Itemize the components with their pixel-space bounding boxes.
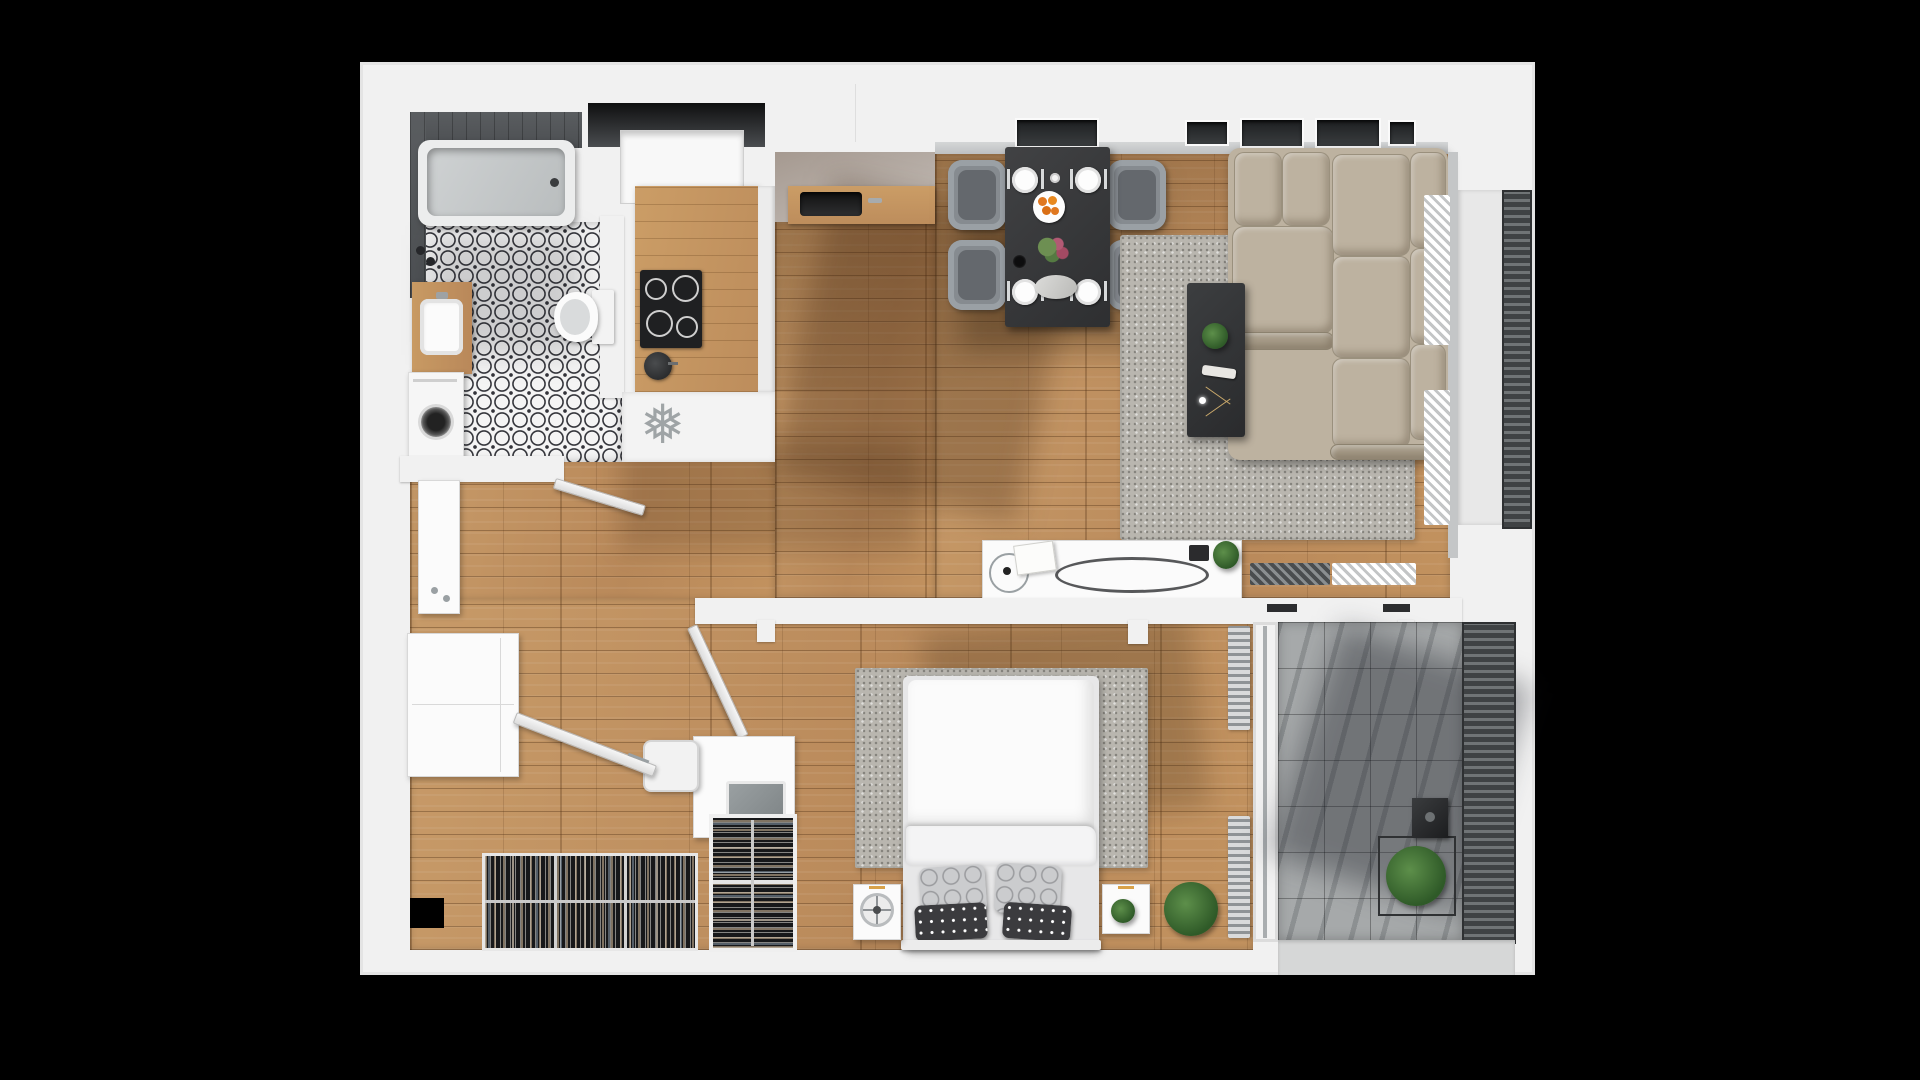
sofa-seat-cushion: [1332, 256, 1410, 358]
closet-column: [418, 480, 460, 614]
nightstand-left: [853, 884, 901, 940]
dining-chair: [1108, 160, 1166, 230]
bedroom-radiator: [1228, 626, 1250, 730]
headboard: [901, 940, 1101, 950]
bathtub-basin: [427, 148, 565, 216]
cabinet-seam: [500, 638, 501, 772]
washer-door: [421, 407, 451, 437]
corner-sofa: [1228, 148, 1448, 460]
coffee-table: [1187, 283, 1245, 437]
bed-duvet: [908, 680, 1094, 830]
nightstand-handle: [869, 886, 885, 889]
coffee-table-plant: [1202, 323, 1228, 349]
door-hook: [431, 587, 438, 594]
toilet-seat: [560, 299, 590, 335]
terrace-railing: [1462, 622, 1516, 944]
wall-notch: [410, 898, 444, 928]
fruit-plate: [1033, 191, 1065, 223]
flower-bouquet: [1037, 235, 1071, 265]
floor-plan-scene: ❅: [0, 0, 1920, 1080]
sofa-seat-cushion: [1332, 154, 1410, 256]
speaker-box: [1189, 545, 1209, 561]
nightstand-right: [1102, 884, 1150, 934]
kitchen-cabinet-seam: [855, 84, 856, 142]
entry-cabinet: [407, 633, 519, 777]
lantern-box: [1412, 798, 1448, 838]
vanity-faucet: [436, 292, 448, 299]
candle-dot: [1199, 397, 1206, 404]
bedroom-east-window: [1253, 622, 1278, 942]
vanity-basin: [420, 299, 463, 355]
sofa-chaise-seat: [1232, 226, 1334, 334]
cabinet-seam: [412, 704, 514, 705]
window: [1185, 120, 1229, 146]
nightstand-plant: [1111, 899, 1135, 923]
window-glass-line: [1263, 626, 1267, 938]
cosmetic-bottle: [426, 257, 435, 266]
radiator: [1250, 563, 1330, 585]
kitchen-sink: [800, 192, 862, 216]
orange: [1038, 197, 1047, 206]
door-jamb-tab: [1128, 620, 1148, 644]
console-sideboard: [982, 540, 1242, 600]
decor-wire: [1205, 398, 1230, 416]
vertical-blinds: [1424, 390, 1450, 525]
window-seal: [1267, 604, 1297, 612]
dining-table: [1005, 147, 1110, 327]
window: [1015, 118, 1099, 148]
toilet-bowl: [554, 292, 598, 342]
caged-plant-foliage: [1386, 846, 1446, 906]
bathtub: [418, 140, 575, 226]
kettle-handle: [668, 362, 678, 365]
vertical-blinds: [1424, 195, 1450, 345]
fridge-snowflake-icon: ❅: [640, 398, 685, 452]
bedroom-north-wall: [695, 598, 1462, 624]
window: [1315, 118, 1381, 148]
chair-seat: [958, 250, 996, 300]
balcony-deck: [1458, 190, 1502, 525]
remote: [1201, 365, 1236, 380]
burner: [676, 316, 698, 338]
cosmetic-bottle: [416, 246, 425, 255]
lantern-top: [1425, 812, 1435, 822]
double-bed: [903, 676, 1099, 950]
sofa-seat-cushion: [1332, 358, 1410, 448]
plate: [1075, 167, 1101, 193]
pillow-polkadot: [914, 902, 988, 942]
burner: [645, 278, 667, 300]
bathtub-faucet: [550, 178, 559, 187]
plate: [1075, 279, 1101, 305]
kitchen-sink-counter: [788, 186, 935, 224]
mirror-center: [1003, 567, 1011, 575]
plate: [1012, 167, 1038, 193]
radiator: [1332, 563, 1416, 585]
tall-wardrobe: [713, 818, 793, 948]
cutlery: [1007, 281, 1010, 301]
dining-chair: [948, 240, 1006, 310]
cutlery: [1041, 169, 1044, 189]
fridge-spot: ❅: [622, 392, 775, 462]
door-hook: [443, 595, 450, 602]
kitchen-counter-edge: [758, 186, 775, 392]
window: [1240, 118, 1304, 148]
sofa-back-cushion: [1234, 152, 1282, 226]
cooktop: [640, 270, 702, 348]
caged-plant: [1378, 836, 1456, 916]
terrace-edge-band: [1278, 940, 1515, 975]
sofa-back-cushion: [1282, 152, 1330, 226]
washer-panel: [413, 379, 457, 382]
open-wardrobe-racks: [485, 856, 695, 948]
cutlery: [1104, 281, 1107, 301]
hanging-rail: [485, 900, 695, 903]
fan-hub: [873, 906, 881, 914]
window-seal: [1383, 604, 1410, 612]
plate: [1012, 279, 1038, 305]
vanity-counter: [412, 282, 472, 374]
washing-machine: [408, 372, 464, 460]
burner: [646, 310, 673, 337]
burner: [672, 275, 699, 302]
cutlery: [1070, 169, 1073, 189]
pillow-polkadot: [1002, 902, 1072, 943]
door-jamb-tab: [757, 620, 775, 642]
bed-duvet-fold: [906, 826, 1096, 866]
chair-seat: [958, 170, 996, 220]
wine-bottle: [1013, 255, 1026, 268]
orange: [1051, 207, 1059, 215]
glass-decor-bowl: [1055, 557, 1209, 593]
bathroom-south-wall: [400, 456, 564, 482]
orange: [1048, 196, 1057, 205]
floor-plant: [1164, 882, 1218, 936]
dining-chair: [948, 160, 1006, 230]
small-cup: [1050, 173, 1060, 183]
cutlery: [1007, 169, 1010, 189]
bedroom-radiator: [1228, 816, 1250, 938]
balcony-railing: [1502, 190, 1532, 529]
nightstand-handle: [1118, 886, 1134, 889]
orange: [1042, 206, 1051, 215]
book-stack: [1013, 540, 1057, 575]
chair-seat: [1118, 170, 1156, 220]
cutlery: [1104, 169, 1107, 189]
window: [1388, 120, 1416, 146]
sink-faucet: [868, 198, 882, 203]
kettle: [644, 352, 672, 380]
console-plant: [1213, 541, 1239, 569]
sofa-armrest: [1230, 332, 1334, 350]
serving-tray: [1035, 275, 1077, 299]
hanging-rail: [751, 820, 754, 946]
table-fan: [860, 893, 894, 927]
